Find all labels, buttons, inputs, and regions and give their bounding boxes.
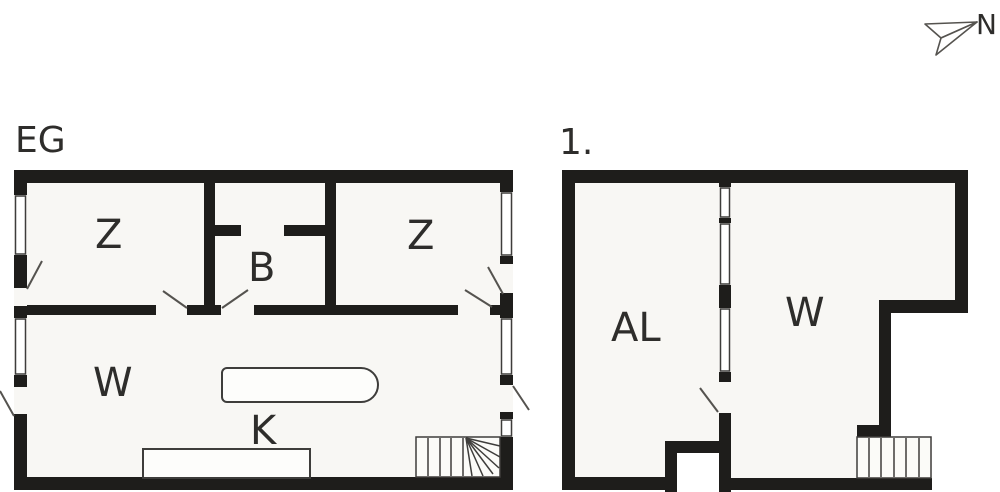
- floor-title-eg: EG: [15, 120, 66, 161]
- window: [502, 193, 512, 255]
- og1-stairs: [857, 437, 931, 478]
- eg-bathroom-wall: [325, 183, 336, 305]
- window: [16, 319, 26, 374]
- eg-right-wall-segment: [500, 375, 513, 385]
- og1-exterior-notch: [932, 437, 968, 492]
- window: [502, 420, 512, 436]
- eg-right-wall-segment: [500, 170, 513, 192]
- kitchen-counter: [143, 449, 310, 478]
- window: [721, 188, 730, 217]
- floor-plan-drawing: EG Z B Z W K: [0, 0, 1000, 492]
- room-label-b: B: [248, 245, 275, 291]
- eg-bathroom-stub-wall: [215, 225, 241, 236]
- north-arrow: N: [925, 8, 997, 55]
- eg-right-wall-segment: [500, 437, 513, 490]
- og1-bottom-wall-w: [731, 478, 932, 490]
- eg-stairs: [416, 437, 500, 477]
- eg-left-wall-segment: [14, 255, 27, 288]
- door-swing-line: [0, 391, 14, 416]
- og1-right-wall: [955, 170, 968, 313]
- floor-plan-og1: 1. AL W: [559, 122, 968, 492]
- og1-stair-stub-wall: [857, 425, 891, 437]
- og1-middle-wall-segment: [719, 372, 731, 382]
- og1-middle-wall-segment: [719, 413, 731, 492]
- eg-left-wall-segment: [14, 375, 27, 387]
- eg-interior-wall-segment: [27, 305, 156, 315]
- og1-top-wall: [562, 170, 968, 183]
- room-label-w-og1: W: [785, 290, 825, 336]
- eg-left-wall-segment: [14, 414, 27, 490]
- eg-interior-wall-segment: [254, 305, 458, 315]
- room-label-z-left: Z: [95, 212, 122, 258]
- og1-stairwell-void: [677, 453, 719, 492]
- og1-stairwell-wall: [665, 452, 677, 492]
- floor-plan-page: EG Z B Z W K: [0, 0, 1000, 492]
- window: [721, 309, 730, 371]
- og1-bottom-wall-al: [562, 477, 665, 490]
- eg-interior-wall-segment: [187, 305, 221, 315]
- eg-right-wall-segment: [500, 256, 513, 264]
- og1-middle-wall-segment: [719, 170, 731, 187]
- og1-right-inner-wall: [879, 313, 891, 437]
- og1-middle-wall-segment: [719, 218, 731, 223]
- window: [16, 196, 26, 254]
- eg-bathroom-wall: [204, 183, 215, 305]
- room-label-z-right: Z: [407, 213, 434, 259]
- room-label-k: K: [250, 408, 278, 454]
- og1-middle-wall-segment: [719, 285, 731, 308]
- eg-right-wall-segment: [500, 412, 513, 419]
- og1-step-wall: [879, 300, 968, 313]
- og1-exterior-notch: [891, 313, 968, 437]
- room-label-al: AL: [611, 305, 661, 351]
- eg-bathroom-stub-wall: [284, 225, 325, 236]
- room-label-w-eg: W: [93, 360, 133, 406]
- eg-right-wall-segment: [500, 293, 513, 318]
- og1-left-wall: [562, 170, 575, 490]
- eg-top-wall: [14, 170, 513, 183]
- eg-left-wall-segment: [14, 306, 27, 318]
- floor-plan-eg: EG Z B Z W K: [0, 120, 529, 490]
- eg-left-wall-segment: [14, 170, 27, 195]
- window: [721, 224, 730, 284]
- kitchen-island-counter: [222, 368, 378, 402]
- window: [502, 319, 512, 374]
- door-swing-line: [513, 386, 529, 410]
- floor-title-og1: 1.: [559, 122, 593, 163]
- north-label: N: [976, 8, 997, 41]
